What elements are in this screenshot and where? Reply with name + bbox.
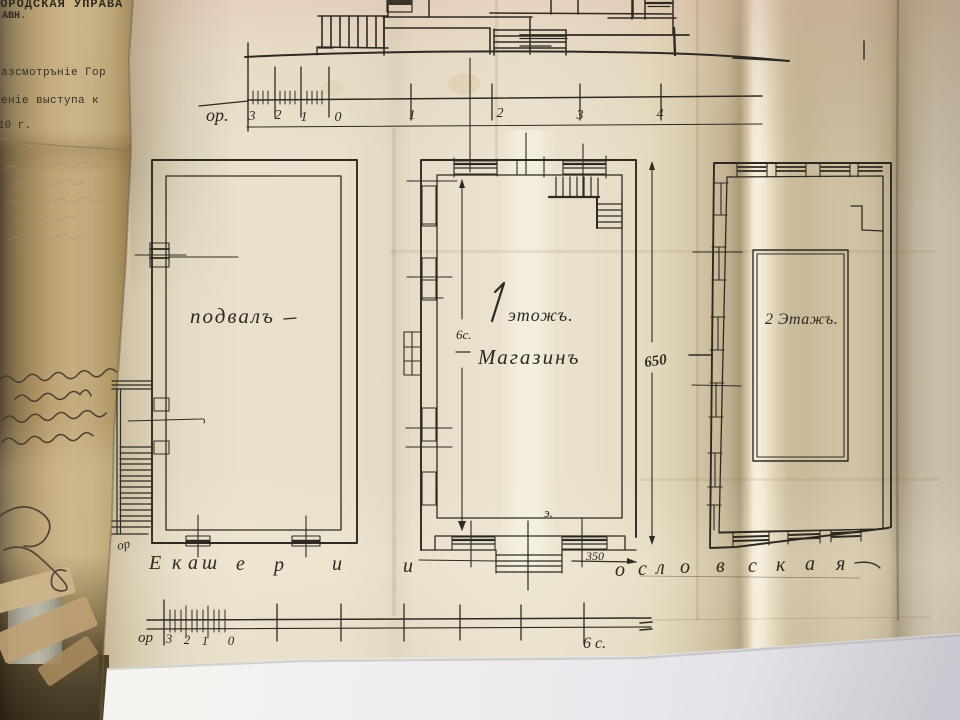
svg-text:2: 2	[275, 108, 282, 123]
svg-text:о: о	[680, 556, 690, 578]
svg-text:я: я	[835, 553, 845, 575]
svg-text:0: 0	[228, 633, 235, 648]
svg-text:и: и	[403, 555, 413, 577]
svg-text:2: 2	[184, 632, 191, 647]
svg-text:этожъ.: этожъ.	[508, 305, 574, 325]
svg-text:подвалъ: подвалъ	[190, 304, 275, 328]
svg-text:к: к	[776, 554, 786, 576]
svg-text:2 Этажъ.: 2 Этажъ.	[765, 311, 838, 328]
svg-text:е: е	[236, 553, 245, 575]
svg-text:и: и	[332, 553, 342, 575]
svg-text:1: 1	[301, 110, 308, 125]
svg-text:с: с	[638, 558, 647, 580]
svg-text:а: а	[188, 552, 198, 574]
svg-text:650: 650	[643, 352, 668, 371]
svg-text:4: 4	[657, 107, 664, 122]
svg-text:л: л	[655, 557, 665, 579]
svg-text:6 с.: 6 с.	[583, 635, 606, 652]
svg-text:ор.: ор.	[206, 105, 229, 125]
svg-text:Магазинъ: Магазинъ	[477, 345, 580, 369]
svg-text:Е: Е	[148, 552, 161, 574]
svg-text:о: о	[615, 559, 625, 581]
svg-text:ор: ор	[138, 630, 154, 646]
svg-text:в: в	[716, 555, 725, 577]
svg-text:ш: ш	[202, 552, 217, 574]
svg-text:10 г.: 10 г.	[0, 120, 31, 132]
svg-text:э.: э.	[544, 505, 553, 520]
svg-text:АВН.: АВН.	[2, 11, 26, 22]
svg-text:3: 3	[248, 109, 256, 124]
svg-text:ГОРОДСКАЯ УПРАВА: ГОРОДСКАЯ УПРАВА	[0, 0, 123, 11]
svg-text:3: 3	[165, 631, 173, 646]
svg-text:к: к	[172, 552, 182, 574]
svg-text:р: р	[272, 554, 284, 576]
svg-text:3: 3	[576, 108, 584, 123]
svg-text:а: а	[805, 553, 815, 575]
svg-text:ор: ор	[116, 535, 132, 552]
svg-text:6с.: 6с.	[456, 327, 472, 342]
svg-text:шенiе выступа к: шенiе выступа к	[0, 95, 99, 107]
svg-text:с: с	[748, 555, 757, 577]
svg-text:2: 2	[497, 106, 504, 121]
svg-text:1: 1	[202, 633, 209, 648]
svg-text:разсмотрънiе Гор: разсмотрънiе Гор	[0, 67, 106, 79]
svg-text:0: 0	[335, 110, 342, 125]
svg-text:350: 350	[585, 549, 604, 563]
svg-text:1: 1	[409, 108, 416, 123]
